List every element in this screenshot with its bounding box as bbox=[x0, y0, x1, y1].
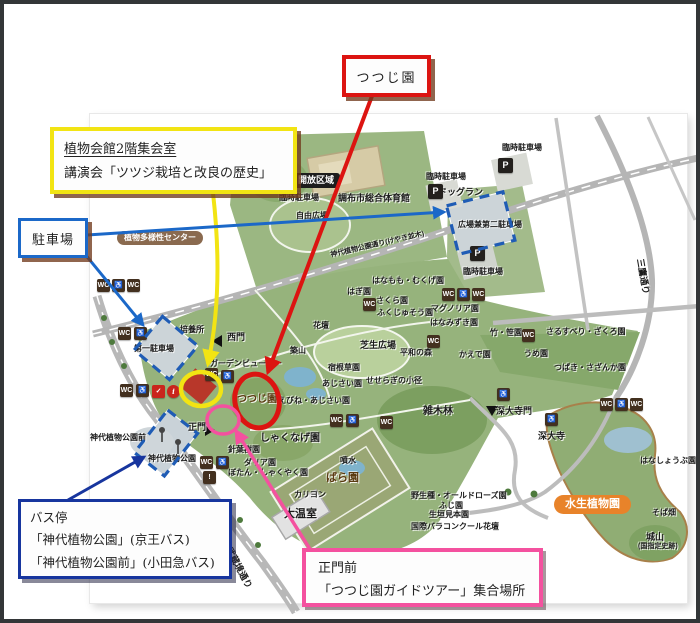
blue-connector-arrow-east bbox=[87, 212, 444, 235]
bus-stop-callout: バス停 「神代植物公園」(京王バス) 「神代植物公園前」(小田急バス) bbox=[18, 499, 232, 579]
navy-connector-arrow bbox=[68, 457, 144, 500]
parking-callout: 駐車場 bbox=[18, 218, 88, 258]
bus-stop-title: バス停 bbox=[30, 507, 220, 529]
yellow-highlight-circle bbox=[181, 372, 221, 406]
parking-callout-label: 駐車場 bbox=[32, 229, 74, 248]
lecture-room-line: 植物会館2階集会室 bbox=[64, 138, 283, 162]
guide-tour-line: 「つつじ園ガイドツアー」集合場所 bbox=[318, 580, 527, 603]
lecture-callout: 植物会館2階集会室 講演会「ツツジ栽培と改良の歴史」 bbox=[50, 127, 297, 194]
pink-highlight-circle bbox=[207, 406, 239, 434]
main-gate-line: 正門前 bbox=[318, 557, 527, 580]
bus-stop-odakyu-line: 「神代植物公園前」(小田急バス) bbox=[30, 552, 220, 574]
azalea-garden-callout: つつじ園 bbox=[342, 55, 431, 97]
dashed-parking-outline-east bbox=[447, 192, 515, 255]
blue-connector-arrow-first bbox=[84, 253, 143, 325]
dashed-bus-stop-outline bbox=[134, 410, 197, 476]
lecture-title-line: 講演会「ツツジ栽培と改良の歴史」 bbox=[64, 162, 283, 186]
azalea-garden-callout-label: つつじ園 bbox=[356, 67, 416, 86]
main-gate-meeting-callout: 正門前 「つつじ園ガイドツアー」集合場所 bbox=[302, 548, 543, 607]
yellow-connector-arrow bbox=[208, 193, 217, 364]
annotated-park-map-slide: 開放区域 植物多様性センター 水生植物園 臨時駐車場臨時駐車場臨時駐車場ドッグラ… bbox=[0, 0, 700, 623]
pink-connector-arrow bbox=[236, 431, 313, 554]
bus-stop-keio-line: 「神代植物公園」(京王バス) bbox=[30, 529, 220, 551]
dashed-parking-outline-first bbox=[134, 316, 198, 379]
